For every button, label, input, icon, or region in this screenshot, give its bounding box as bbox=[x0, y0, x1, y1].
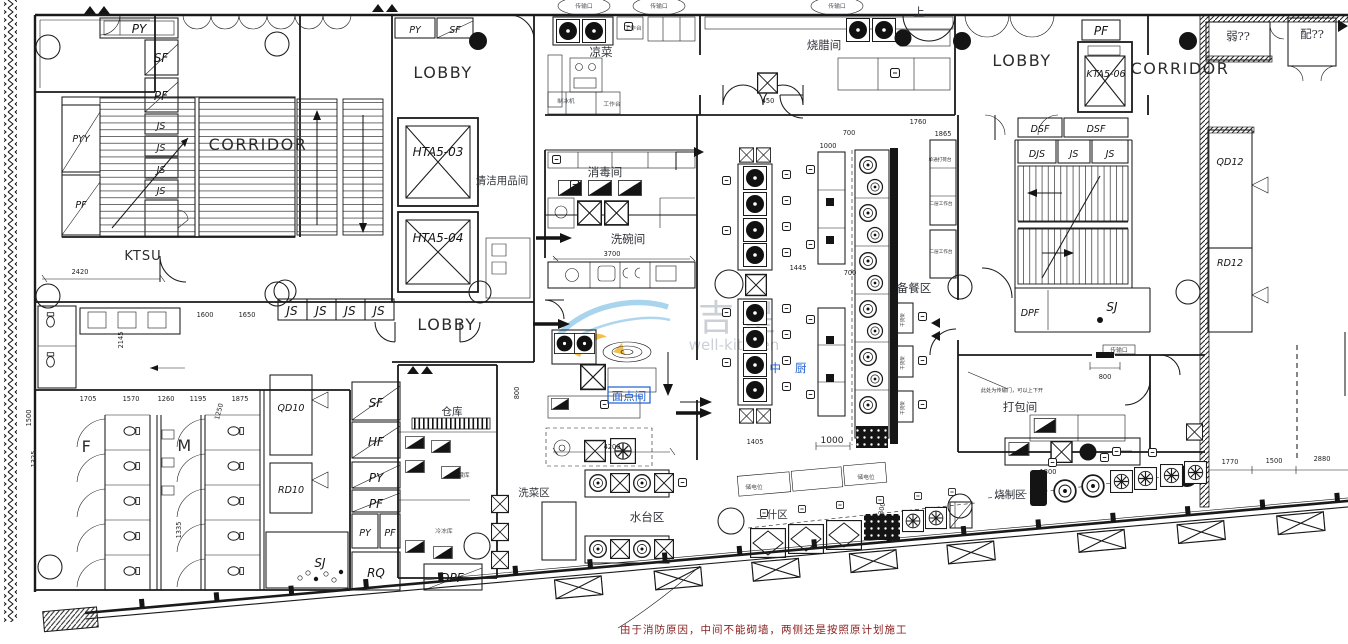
room-label-roast-zone: 烧制区 bbox=[994, 488, 1026, 501]
dishwash-room: 洗碗间 3700 bbox=[536, 232, 743, 298]
room-label-lobby-right: LOBBY bbox=[992, 51, 1051, 70]
dim-1875: 1875 bbox=[232, 395, 249, 403]
room-label-sj-left: SJ bbox=[314, 556, 326, 570]
shaft-label-dsf: DSF bbox=[1087, 124, 1106, 135]
elevator-label-hta5-04: HTA5-04 bbox=[413, 231, 464, 245]
single-pass-counter-label: 单通打荷台 bbox=[929, 156, 952, 163]
room-label-dishwash: 洗碗间 bbox=[611, 232, 646, 246]
dim-4200: 4200 bbox=[604, 443, 621, 451]
roast-room: 烧腊间 450 上 bbox=[705, 5, 955, 118]
room-label-freezer: 冷冻库 bbox=[435, 527, 453, 535]
shaft-label-rd12: RD12 bbox=[1217, 258, 1243, 269]
room-label-cold-dish: 凉菜 bbox=[590, 45, 613, 59]
shaft-label-py-top: PY bbox=[132, 22, 148, 36]
double-worktable-label: 二层工作台 bbox=[930, 200, 953, 207]
shaft-label-js: JS bbox=[284, 304, 298, 318]
shaft-label-sf: SF bbox=[369, 396, 385, 410]
shaft-label-sf: SF bbox=[154, 51, 170, 65]
column-marker bbox=[469, 32, 487, 50]
dim-1600: 1600 bbox=[197, 311, 214, 319]
shaft-label-dsf: DSF bbox=[1031, 124, 1050, 135]
curtain-wall-band bbox=[42, 492, 1348, 644]
dim-700b: 700 bbox=[843, 129, 856, 137]
dim-1500: 1500 bbox=[25, 410, 33, 427]
dim-450: 450 bbox=[762, 97, 775, 105]
qd12-rd12-shafts: QD12 RD12 bbox=[1208, 127, 1268, 332]
vent-shaft-column: SF HF PY PF PY PF RQ bbox=[352, 382, 400, 590]
stair-up-label: 上 bbox=[913, 5, 925, 19]
dim-800: 800 bbox=[513, 387, 521, 400]
dim-3700: 3700 bbox=[604, 250, 621, 258]
dim-1195: 1195 bbox=[190, 395, 207, 403]
shaft-label-rq: RQ bbox=[367, 566, 385, 580]
pass-window-tag: 传输口 bbox=[828, 2, 846, 10]
dim-1335: 1335 bbox=[175, 522, 183, 539]
room-label-veg-wash: 洗菜区 bbox=[518, 487, 550, 499]
watermark-swoosh bbox=[558, 303, 668, 336]
dim-1760: 1760 bbox=[910, 118, 927, 126]
room-label-cleaning: 清洁用品间 bbox=[476, 174, 529, 187]
power-point-label: 储电位 bbox=[857, 473, 875, 481]
room-label-storage: 仓库 bbox=[442, 405, 463, 418]
west-expansion-joint bbox=[4, 0, 17, 622]
room-label-roast: 烧腊间 bbox=[807, 38, 842, 52]
shaft-label-pf: PF bbox=[384, 528, 396, 539]
dim-2880: 2880 bbox=[1314, 455, 1331, 463]
water-station: 洗菜区 水台区 4200 bbox=[518, 408, 712, 563]
room-label-toilet-m: M bbox=[177, 436, 192, 455]
room-label-sj-right: SJ bbox=[1106, 300, 1118, 314]
dim-1445: 1445 bbox=[790, 264, 807, 272]
dim-1650: 1650 bbox=[239, 311, 256, 319]
shaft-label-pyy: PYY bbox=[72, 134, 91, 145]
dim-1570: 1570 bbox=[123, 395, 140, 403]
shaft-label-pf: PF bbox=[75, 200, 87, 211]
shaft-label-djs: DJS bbox=[1029, 149, 1045, 160]
pass-window-tag: 传输口 bbox=[1110, 346, 1128, 354]
room-label-prep: 备餐区 bbox=[897, 281, 932, 295]
ice-maker-label: 制冰机 bbox=[557, 97, 575, 105]
shaft-label-pf: PF bbox=[369, 497, 384, 511]
shaft-label-js: JS bbox=[313, 304, 327, 318]
dry-rack-label: 干货架 bbox=[899, 401, 906, 415]
shaft-label-js: JS bbox=[1104, 149, 1115, 160]
floorplan-canvas: 吉星 well-kitchen PY SF PF JS JS JS JS PYY… bbox=[0, 0, 1348, 644]
shaft-label-hf: HF bbox=[368, 435, 385, 449]
right-lobby-block: LOBBY CORRIDOR PF KTA5-06 DSF DSF DJS JS… bbox=[953, 15, 1229, 163]
room-label-lobby-left: LOBBY bbox=[413, 63, 472, 82]
shaft-label-qd10: QD10 bbox=[278, 403, 305, 414]
room-label-weak-current: 弱?? bbox=[1226, 29, 1250, 43]
shaft-label-js: JS bbox=[371, 304, 385, 318]
lobby-mid: JS JS JS JS LOBBY bbox=[274, 280, 570, 374]
toilet-block: F M QD10 RD10 SJ bbox=[38, 375, 348, 590]
room-label-lobby-mid: LOBBY bbox=[417, 315, 476, 334]
shaft-label-py: PY bbox=[369, 471, 385, 485]
double-worktable-label: 二层工作台 bbox=[930, 248, 953, 255]
shaft-label-js: JS bbox=[1068, 149, 1079, 160]
shaft-label-py: PY bbox=[409, 25, 422, 36]
storage-block: 仓库 冷藏库 冷冻库 DPF 800 bbox=[398, 387, 521, 590]
floorplan-page: 吉星 well-kitchen PY SF PF JS JS JS JS PYY… bbox=[0, 0, 1348, 644]
shaft-label-qd12: QD12 bbox=[1217, 157, 1244, 168]
room-label-corridor-left: CORRIDOR bbox=[209, 135, 308, 154]
room-label-power: 配?? bbox=[1300, 27, 1324, 41]
shaft-label-pf-right: PF bbox=[1094, 24, 1109, 38]
elevator-label-hta5-03: HTA5-03 bbox=[413, 145, 464, 159]
fire-note-text: 由于消防原因，中间不能砌墙，两侧还是按照原计划施工 bbox=[620, 623, 908, 636]
room-label-ktsu: KTSU bbox=[124, 249, 161, 264]
room-label-pastry: 面点间 bbox=[612, 389, 647, 403]
dim-700: 700 bbox=[844, 269, 857, 277]
dim-1250: 1250 bbox=[213, 402, 225, 420]
prep-area: 备餐区 单通打荷台 二层工作台 二层工作台 干货架 干货架 干货架 1760 1… bbox=[820, 118, 956, 422]
worktable-label: 工作台 bbox=[624, 24, 642, 32]
main-kitchen-equipment: 1445 700 1405 1000 中厨 bbox=[722, 148, 898, 450]
power-point-label: 储电位 bbox=[745, 483, 763, 491]
shaft-label-sf: SF bbox=[449, 25, 461, 36]
dim-2145: 2145 bbox=[117, 332, 125, 349]
worktable-label: 工作台 bbox=[603, 100, 621, 108]
room-label-toilet-f: F bbox=[82, 437, 93, 456]
room-label-disinfect: 消毒间 bbox=[588, 165, 623, 179]
dim-1325: 1325 bbox=[30, 451, 38, 468]
dim-1405: 1405 bbox=[747, 438, 764, 446]
room-label-packing: 打包间 bbox=[1003, 400, 1038, 414]
shaft-label-py: PY bbox=[359, 528, 372, 539]
elevator-label-kta5-06: KTA5-06 bbox=[1086, 69, 1125, 80]
pass-window-tag: 传输口 bbox=[650, 2, 668, 10]
shaft-label-rd10: RD10 bbox=[278, 485, 304, 496]
roast-zone: 烧制区 5760 bbox=[988, 448, 1207, 506]
dim-1705: 1705 bbox=[80, 395, 97, 403]
dim-1000b: 1000 bbox=[820, 142, 837, 150]
shaft-label-js: JS bbox=[342, 304, 356, 318]
stairwell-2 bbox=[297, 99, 383, 235]
dim-1260: 1260 bbox=[158, 395, 175, 403]
prep-divider-strip bbox=[890, 148, 898, 444]
dim-1500b: 1500 bbox=[1266, 457, 1283, 465]
cold-dish-room: 传输口 传输口 传输口 工作台 凉菜 制冰机 工作台 bbox=[548, 0, 863, 189]
dim-1770: 1770 bbox=[1222, 458, 1239, 466]
disinfection-room: 消毒间 bbox=[545, 147, 704, 228]
wash-band bbox=[38, 306, 185, 388]
dim-1865: 1865 bbox=[935, 130, 952, 138]
dry-rack-label: 干货架 bbox=[899, 356, 906, 370]
room-label-water-zone: 水台区 bbox=[630, 510, 665, 524]
stairwell-1: PYY PF KTSU bbox=[62, 97, 295, 282]
dry-rack-label: 干货架 bbox=[899, 313, 906, 327]
room-label-main-kitchen: 中厨 bbox=[770, 361, 821, 375]
lobby-left-block: LOBBY PY SF HTA5-03 HTA5-04 清洁用品间 bbox=[395, 15, 534, 298]
shaft-label-dpf-right: DPF bbox=[1021, 308, 1040, 319]
watermark-brand: 吉星 bbox=[698, 298, 782, 339]
stairwell-3 bbox=[1018, 166, 1128, 284]
pass-window-tag: 传输口 bbox=[575, 2, 593, 10]
dim-1000: 1000 bbox=[821, 436, 844, 446]
dim-800b: 800 bbox=[1099, 373, 1112, 381]
dim-2420: 2420 bbox=[72, 268, 89, 276]
transfer-door-note: 此处为传输门，可以上下开 bbox=[981, 386, 1043, 394]
